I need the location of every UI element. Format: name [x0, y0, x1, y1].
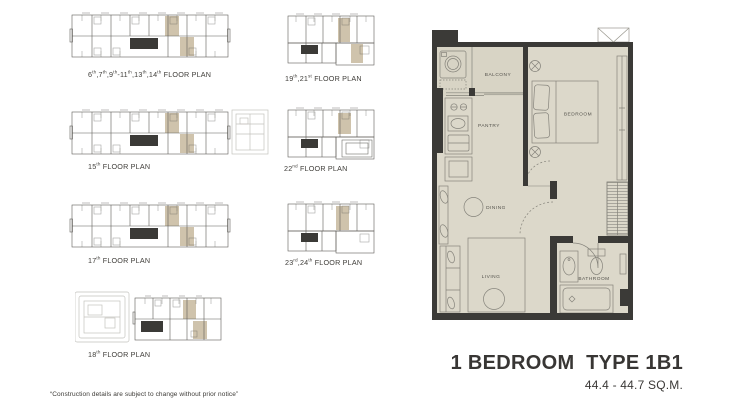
floor-plan-label: 17th FLOOR PLAN — [88, 256, 150, 265]
floor-plate-drawing — [284, 104, 378, 162]
ac-condenser-icon — [598, 28, 629, 42]
roof-annex-outline — [342, 140, 372, 157]
room-label-living: LIVING — [482, 274, 501, 280]
floor-plate-thumbnail-22: 22nd FLOOR PLAN — [284, 104, 378, 162]
floor-plate-drawing — [68, 200, 232, 252]
roof-annex-outline — [75, 292, 129, 342]
floor-plan-label: 22nd FLOOR PLAN — [284, 164, 348, 173]
floor-plate-thumbnail-17: 17th FLOOR PLAN — [68, 200, 232, 252]
room-label-dining: DINING — [486, 205, 506, 211]
room-label-bedroom: BEDROOM — [564, 112, 592, 118]
floor-plate-thumbnail-23-24: 23rd,24th FLOOR PLAN — [284, 198, 378, 256]
unit-info: 1 BEDROOM TYPE 1B1 44.4 - 44.7 SQ.M. — [451, 352, 683, 392]
room-label-pantry: PANTRY — [478, 123, 500, 129]
unit-type-title: 1 BEDROOM TYPE 1B1 — [451, 352, 683, 375]
floor-plan-label: 6th,7th,9th-11th,13th,14th FLOOR PLAN — [88, 70, 211, 79]
floor-plate-drawing — [284, 198, 378, 256]
brochure-page: 6th,7th,9th-11th,13th,14th FLOOR PLAN 15… — [0, 0, 745, 415]
floor-plate-thumbnail-15: 15th FLOOR PLAN — [68, 106, 270, 160]
floor-plan-label: 19th,21st FLOOR PLAN — [285, 74, 362, 83]
floor-plate-drawing — [68, 10, 232, 62]
shoe-cabinet-icon — [607, 182, 628, 235]
balcony-floor — [434, 46, 528, 96]
floor-plan-label: 15th FLOOR PLAN — [88, 162, 150, 171]
floor-plan-label: 23rd,24th FLOOR PLAN — [285, 258, 362, 267]
disclaimer-footnote: “Construction details are subject to cha… — [50, 391, 238, 398]
room-label-balcony: BALCONY — [485, 72, 512, 78]
unit-floor-plan-drawing: BALCONY PANTRY BEDROOM DINING LIVING BAT… — [432, 16, 648, 344]
floor-plate-thumbnail-19-21: 19th,21st FLOOR PLAN — [284, 10, 378, 68]
floor-plate-drawing — [284, 10, 378, 68]
floor-plate-drawing — [68, 106, 270, 160]
floor-plate-thumbnail-18: 18th FLOOR PLAN — [75, 290, 231, 348]
unit-floor-plan: BALCONY PANTRY BEDROOM DINING LIVING BAT… — [432, 16, 648, 344]
roof-annex-outline — [232, 110, 268, 154]
unit-area: 44.4 - 44.7 SQ.M. — [451, 378, 683, 392]
floor-plate-drawing — [75, 290, 231, 348]
floor-plan-label: 18th FLOOR PLAN — [88, 350, 150, 359]
floor-plate-thumbnail-6-14: 6th,7th,9th-11th,13th,14th FLOOR PLAN — [68, 10, 232, 62]
room-label-bathroom: BATHROOM — [578, 276, 609, 282]
